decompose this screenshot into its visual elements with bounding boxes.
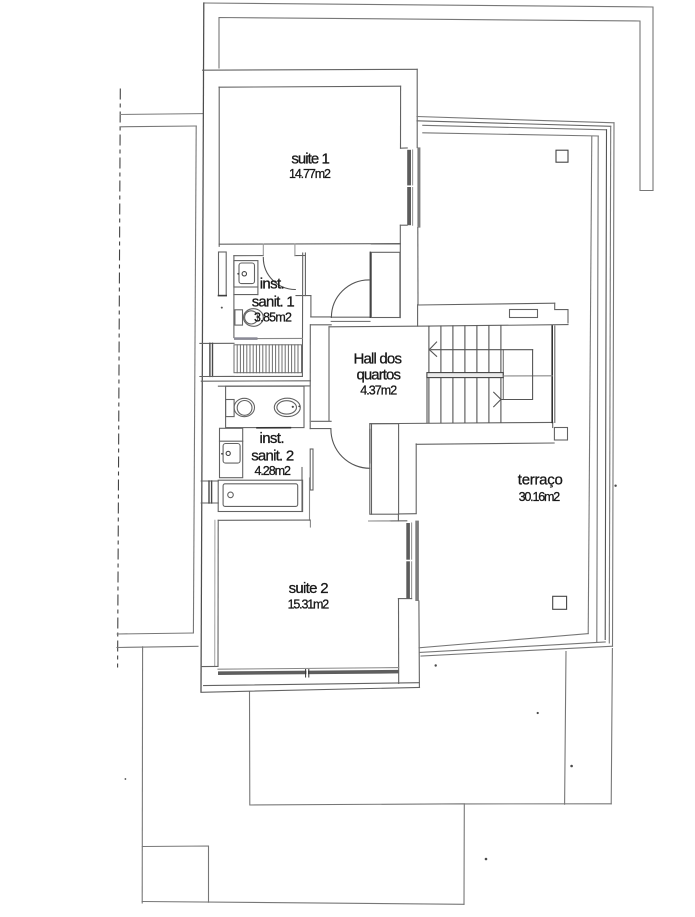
- svg-text:30.16m2: 30.16m2: [519, 490, 561, 504]
- svg-text:suite 1: suite 1: [291, 151, 330, 168]
- svg-text:4.37m2: 4.37m2: [360, 384, 397, 398]
- svg-text:3.85m2: 3.85m2: [254, 311, 292, 325]
- svg-text:sanit. 2: sanit. 2: [251, 448, 294, 465]
- svg-text:Hall dos: Hall dos: [353, 350, 402, 367]
- svg-text:15.31m2: 15.31m2: [288, 597, 330, 611]
- svg-text:4.28m2: 4.28m2: [254, 464, 291, 478]
- svg-text:inst.: inst.: [260, 430, 285, 447]
- svg-text:quartos: quartos: [356, 367, 401, 384]
- svg-text:terraço: terraço: [518, 472, 563, 489]
- svg-text:sanit. 1: sanit. 1: [252, 293, 295, 310]
- svg-text:inst.: inst.: [260, 276, 285, 293]
- svg-text:14.77m2: 14.77m2: [289, 167, 331, 181]
- svg-text:suite 2: suite 2: [289, 580, 329, 597]
